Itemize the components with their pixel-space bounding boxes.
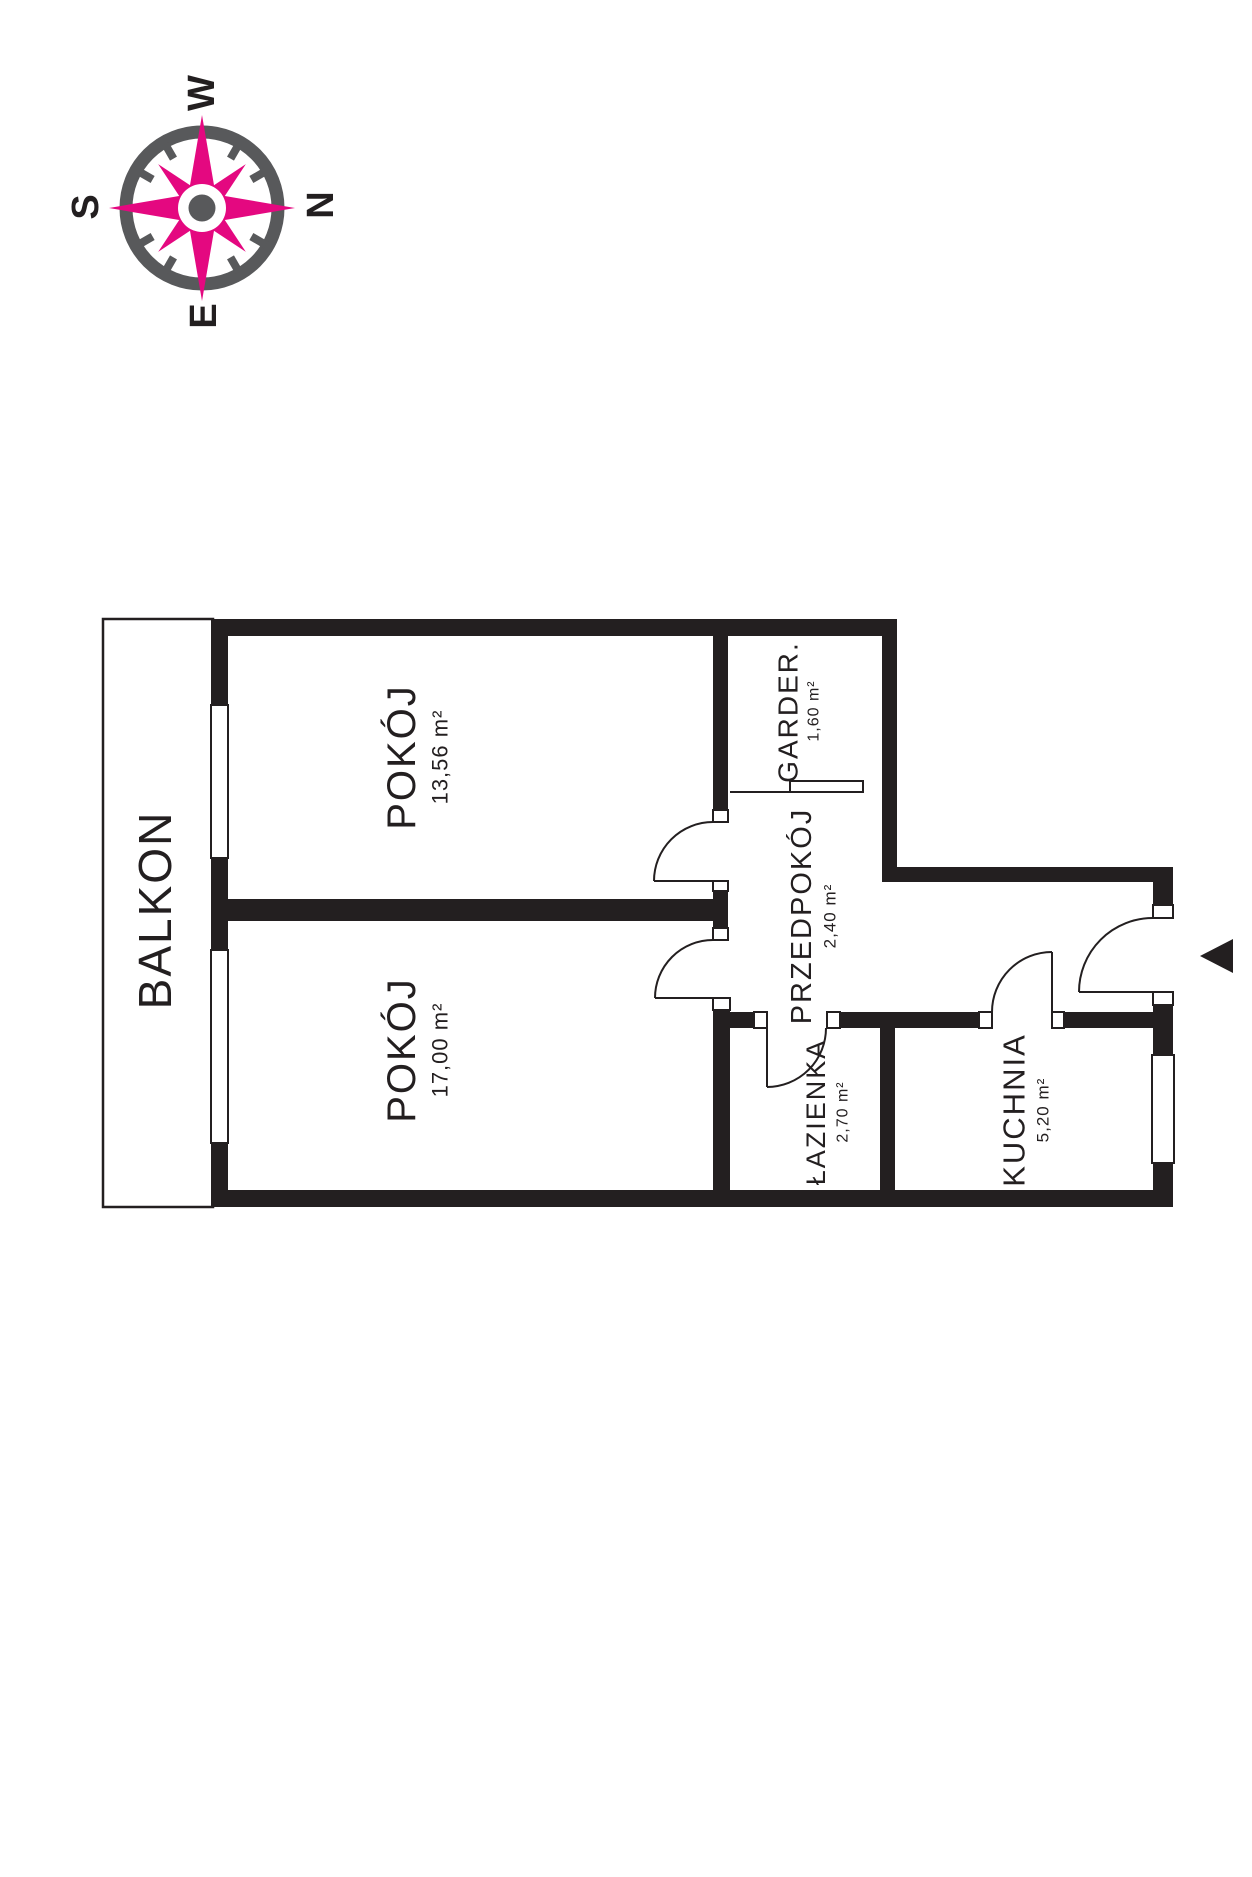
door-jamb xyxy=(713,810,728,822)
wall-segment xyxy=(713,635,728,810)
compass-letter-south: S xyxy=(65,194,107,219)
compass-hub-dot xyxy=(189,195,216,222)
wall-segment xyxy=(882,619,897,882)
room-label-przedpokoj: PRZEDPOKÓJ xyxy=(785,808,818,1025)
window xyxy=(211,705,228,858)
door-jamb xyxy=(713,928,728,940)
door-jamb xyxy=(1052,1012,1064,1028)
wall-segment xyxy=(713,1010,730,1192)
room-area-pokoj-1: 13,56 m² xyxy=(428,710,453,805)
window xyxy=(1152,1055,1174,1163)
wall-segment xyxy=(1153,1163,1173,1207)
room-area-pokoj-2: 17,00 m² xyxy=(428,1003,453,1098)
floor-plan-page: W N S E xyxy=(0,0,1252,1877)
door-jamb xyxy=(979,1012,992,1028)
wall-segment xyxy=(730,1012,754,1028)
door-swing-arc xyxy=(654,822,713,881)
room-label-lazienka: ŁAZIENKA xyxy=(801,1039,831,1186)
door-swing-arc xyxy=(992,952,1052,1012)
entrance-arrow-icon xyxy=(1200,939,1233,973)
room-label-pokoj-2: POKÓJ xyxy=(379,977,424,1123)
door-jamb xyxy=(713,881,728,891)
floor-plan-canvas: W N S E xyxy=(0,0,1252,1877)
compass-letter-east: E xyxy=(183,303,225,328)
compass-letter-west: W xyxy=(181,75,223,111)
door-jamb xyxy=(827,1012,840,1028)
compass-rose-icon: W N S E xyxy=(65,75,342,329)
wall-segment xyxy=(1153,867,1173,905)
door-jamb xyxy=(1153,905,1173,918)
wall-segment xyxy=(212,619,897,636)
room-area-przedpokoj: 2,40 m² xyxy=(821,884,840,949)
wall-segment xyxy=(713,891,728,928)
wall-segment xyxy=(840,1012,979,1028)
room-area-kuchnia: 5,20 m² xyxy=(1034,1078,1053,1143)
wall-segment xyxy=(212,1190,1173,1207)
door-jamb xyxy=(754,1012,767,1028)
room-area-garderoba: 1,60 m² xyxy=(806,680,823,741)
window xyxy=(211,950,228,1143)
compass-letter-north: N xyxy=(300,191,342,218)
door-jambs xyxy=(713,810,1173,1028)
door-jamb xyxy=(1153,992,1173,1005)
wall-segment xyxy=(1064,1012,1173,1028)
door-swing-arc xyxy=(655,940,713,998)
wall-segment xyxy=(880,1012,895,1190)
room-label-balkon: BALKON xyxy=(129,811,181,1010)
room-label-garderoba: GARDER. xyxy=(773,641,804,783)
wall-segment xyxy=(882,867,1173,882)
room-label-pokoj-1: POKÓJ xyxy=(379,684,424,830)
door-swing-arc xyxy=(1079,918,1153,992)
room-label-kuchnia: KUCHNIA xyxy=(997,1033,1032,1187)
door-jamb xyxy=(713,998,730,1010)
wall-segment xyxy=(228,899,713,921)
room-area-lazienka: 2,70 m² xyxy=(835,1081,852,1142)
